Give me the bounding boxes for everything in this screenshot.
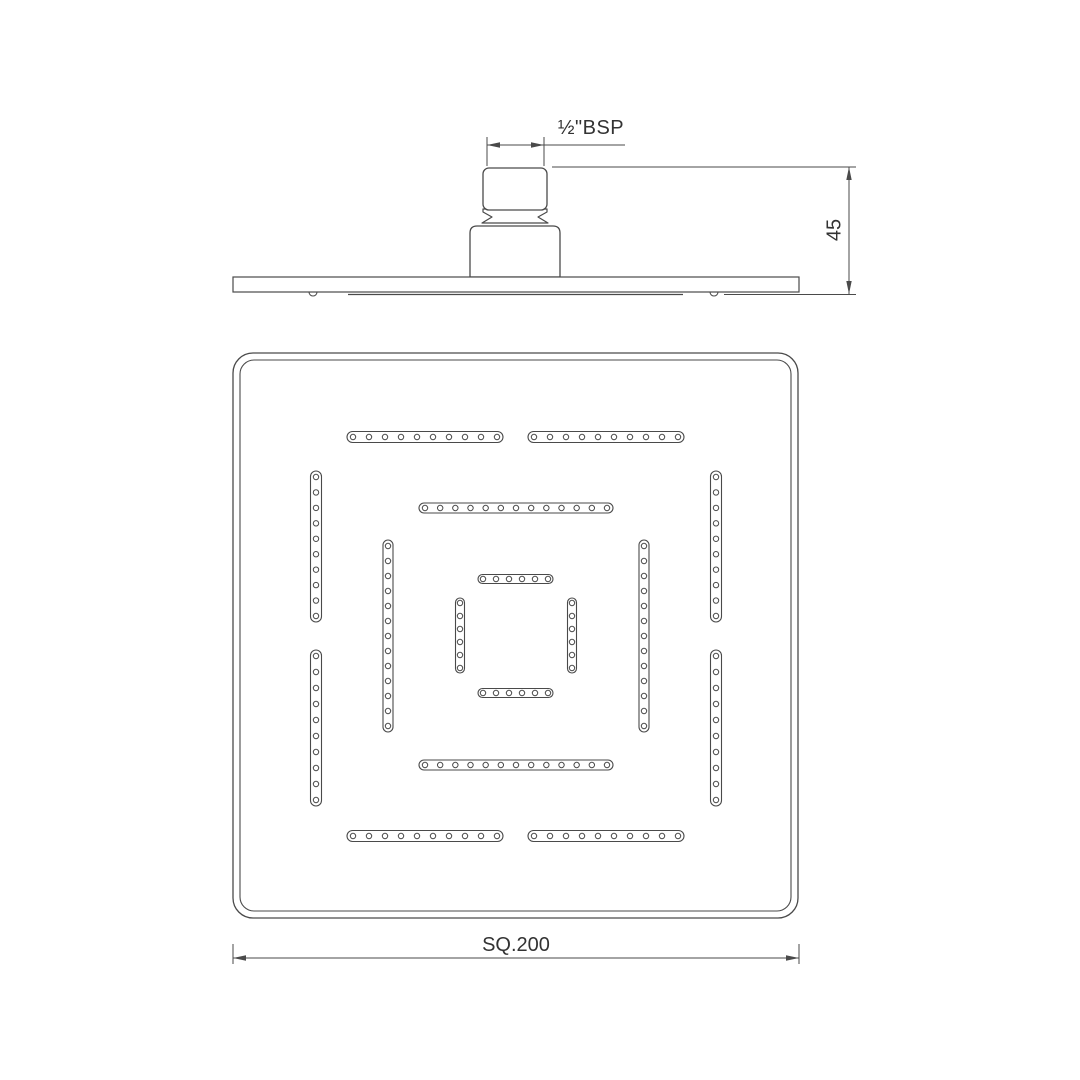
nozzle-hole: [382, 833, 387, 838]
nozzle-hole: [627, 833, 632, 838]
nozzle-hole: [595, 434, 600, 439]
nozzle-hole: [675, 833, 680, 838]
nozzle-slot: [383, 540, 393, 732]
nozzle-slot: [639, 540, 649, 732]
nozzle-hole: [569, 665, 574, 670]
nozzle-hole: [713, 669, 718, 674]
inlet-waist: [482, 209, 548, 223]
nozzle-hole: [519, 690, 524, 695]
nozzle-hole: [589, 762, 594, 767]
nozzle-hole: [385, 723, 390, 728]
nozzle-hole: [382, 434, 387, 439]
nozzle-hole: [713, 536, 718, 541]
nozzle-slot: [347, 831, 503, 842]
shower-head-technical-drawing: [0, 0, 1080, 1080]
nozzle-hole: [453, 762, 458, 767]
head-plate-side: [233, 277, 799, 292]
nozzle-hole: [532, 576, 537, 581]
nozzle-hole: [478, 833, 483, 838]
nozzle-hole: [574, 762, 579, 767]
nozzle-hole: [589, 505, 594, 510]
nozzle-hole: [659, 833, 664, 838]
nozzle-hole: [385, 663, 390, 668]
nozzle-slot: [311, 650, 322, 806]
nozzle-hole: [385, 543, 390, 548]
nozzle-slot: [528, 831, 684, 842]
nozzle-hole: [641, 588, 646, 593]
nozzle-hole: [532, 690, 537, 695]
nozzle-hole: [559, 505, 564, 510]
nozzle-hole: [313, 717, 318, 722]
nozzle-slot: [478, 689, 553, 698]
nozzle-slot: [311, 471, 322, 622]
nozzle-hole: [574, 505, 579, 510]
nozzle-hole: [545, 576, 550, 581]
nozzle-hole: [513, 505, 518, 510]
nozzle-hole: [547, 434, 552, 439]
nozzle-slot: [456, 598, 465, 673]
nozzle-hole: [641, 678, 646, 683]
nozzle-hole: [519, 576, 524, 581]
nozzle-hole: [493, 690, 498, 695]
nozzle-hole: [385, 558, 390, 563]
nozzle-hole: [385, 708, 390, 713]
nozzle-hole: [713, 781, 718, 786]
nozzle-hole: [313, 613, 318, 618]
nozzle-slot: [478, 575, 553, 584]
nozzle-hole: [713, 505, 718, 510]
nozzle-hole: [569, 639, 574, 644]
nozzle-hole: [498, 762, 503, 767]
face-outer-edge: [233, 353, 798, 918]
height-dimension: [552, 167, 856, 295]
nozzle-hole: [713, 653, 718, 658]
nozzle-hole: [641, 573, 646, 578]
nozzle-hole: [385, 633, 390, 638]
nozzle-hole: [498, 505, 503, 510]
nozzle-hole: [483, 505, 488, 510]
nozzle-hole: [611, 833, 616, 838]
nozzle-hole: [350, 833, 355, 838]
thread-size-label: ½"BSP: [558, 117, 624, 140]
nozzle-slot: [568, 598, 577, 673]
nozzle-hole: [366, 434, 371, 439]
nozzle-hole: [457, 626, 462, 631]
nozzle-hole: [713, 521, 718, 526]
nozzle-hole: [713, 613, 718, 618]
nozzle-hole: [545, 690, 550, 695]
nozzle-hole: [627, 434, 632, 439]
nozzle-hole: [641, 543, 646, 548]
nozzle-hole: [313, 781, 318, 786]
nozzle-hole: [641, 693, 646, 698]
nozzle-hole: [713, 701, 718, 706]
nozzle-hole: [414, 434, 419, 439]
nozzle-hole: [313, 685, 318, 690]
nozzle-hole: [641, 723, 646, 728]
nozzle-hole: [713, 598, 718, 603]
nozzle-bump: [309, 292, 317, 296]
nozzle-hole: [468, 762, 473, 767]
nozzle-hole: [313, 582, 318, 587]
nozzle-hole: [713, 765, 718, 770]
nozzle-hole: [453, 505, 458, 510]
nozzle-hole: [446, 833, 451, 838]
nozzle-hole: [713, 567, 718, 572]
size-dimension-label: SQ.200: [482, 934, 550, 957]
nozzle-hole: [713, 490, 718, 495]
nozzle-hole: [563, 833, 568, 838]
nozzle-hole: [313, 474, 318, 479]
nozzle-hole: [643, 833, 648, 838]
nozzle-hole: [641, 618, 646, 623]
height-dimension-label: 45: [824, 219, 847, 241]
nozzle-hole: [457, 665, 462, 670]
nozzle-hole: [506, 690, 511, 695]
nozzle-hole: [480, 576, 485, 581]
nozzle-hole: [528, 762, 533, 767]
nozzle-hole: [493, 576, 498, 581]
nozzle-hole: [385, 693, 390, 698]
nozzle-hole: [313, 552, 318, 557]
nozzle-slot: [419, 760, 613, 770]
nozzle-hole: [494, 434, 499, 439]
nozzle-slot: [528, 432, 684, 443]
nozzle-hole: [313, 669, 318, 674]
nozzle-hole: [366, 833, 371, 838]
nozzle-hole: [547, 833, 552, 838]
nozzle-hole: [528, 505, 533, 510]
nozzle-hole: [641, 603, 646, 608]
nozzle-hole: [569, 613, 574, 618]
nozzle-bump: [710, 292, 718, 296]
nozzle-hole: [313, 536, 318, 541]
nozzle-hole: [457, 600, 462, 605]
nozzle-hole: [713, 733, 718, 738]
nozzle-hole: [641, 663, 646, 668]
nozzle-hole: [641, 648, 646, 653]
nozzle-hole: [313, 749, 318, 754]
bsp-dimension: [487, 137, 625, 166]
nozzle-hole: [385, 618, 390, 623]
bottom-view: [233, 353, 798, 918]
nozzle-hole: [350, 434, 355, 439]
nozzle-hole: [385, 678, 390, 683]
nozzle-hole: [641, 708, 646, 713]
nozzle-hole: [462, 833, 467, 838]
nozzle-hole: [457, 613, 462, 618]
nozzle-hole: [313, 733, 318, 738]
nozzle-hole: [385, 588, 390, 593]
nozzle-hole: [713, 749, 718, 754]
nozzle-hole: [313, 653, 318, 658]
nozzle-slot: [711, 471, 722, 622]
nozzle-hole: [544, 762, 549, 767]
nozzle-hole: [713, 552, 718, 557]
nozzle-hole: [713, 797, 718, 802]
nozzle-hole: [604, 505, 609, 510]
nozzle-hole: [398, 833, 403, 838]
nozzle-hole: [563, 434, 568, 439]
nozzle-hole: [569, 600, 574, 605]
nozzle-hole: [494, 833, 499, 838]
nozzle-hole: [569, 626, 574, 631]
nozzle-hole: [480, 690, 485, 695]
nozzle-hole: [595, 833, 600, 838]
inlet-base: [470, 226, 560, 277]
nozzle-slot: [711, 650, 722, 806]
nozzle-hole: [641, 558, 646, 563]
inlet-thread-nipple: [483, 168, 547, 210]
nozzle-hole: [313, 490, 318, 495]
nozzle-hole: [313, 797, 318, 802]
nozzle-slot: [419, 503, 613, 513]
nozzle-hole: [713, 717, 718, 722]
side-view: [233, 168, 799, 296]
nozzle-hole: [414, 833, 419, 838]
nozzle-hole: [422, 762, 427, 767]
nozzle-hole: [462, 434, 467, 439]
nozzle-hole: [430, 833, 435, 838]
nozzle-hole: [446, 434, 451, 439]
nozzle-hole: [531, 434, 536, 439]
nozzle-hole: [468, 505, 473, 510]
nozzle-hole: [544, 505, 549, 510]
nozzle-hole: [385, 603, 390, 608]
nozzle-hole: [579, 833, 584, 838]
nozzle-hole: [641, 633, 646, 638]
nozzle-hole: [675, 434, 680, 439]
nozzle-hole: [313, 567, 318, 572]
nozzle-hole: [611, 434, 616, 439]
nozzle-slot: [347, 432, 503, 443]
nozzle-hole: [531, 833, 536, 838]
nozzle-hole: [437, 505, 442, 510]
nozzle-hole: [713, 685, 718, 690]
nozzle-hole: [713, 582, 718, 587]
nozzle-hole: [579, 434, 584, 439]
nozzle-hole: [604, 762, 609, 767]
nozzle-hole: [313, 765, 318, 770]
nozzle-hole: [457, 652, 462, 657]
nozzle-hole: [313, 521, 318, 526]
nozzle-hole: [430, 434, 435, 439]
nozzle-hole: [313, 701, 318, 706]
nozzle-hole: [513, 762, 518, 767]
nozzle-hole: [313, 505, 318, 510]
nozzle-hole: [457, 639, 462, 644]
nozzle-hole: [643, 434, 648, 439]
nozzle-hole: [478, 434, 483, 439]
nozzle-hole: [385, 648, 390, 653]
nozzle-hole: [422, 505, 427, 510]
nozzle-hole: [483, 762, 488, 767]
nozzle-hole: [559, 762, 564, 767]
nozzle-hole: [569, 652, 574, 657]
nozzle-hole: [313, 598, 318, 603]
nozzle-hole: [713, 474, 718, 479]
nozzle-hole: [437, 762, 442, 767]
nozzle-hole: [385, 573, 390, 578]
nozzle-hole: [506, 576, 511, 581]
nozzle-hole: [398, 434, 403, 439]
nozzle-hole: [659, 434, 664, 439]
drawing-canvas: ½"BSP 45 SQ.200: [0, 0, 1080, 1080]
